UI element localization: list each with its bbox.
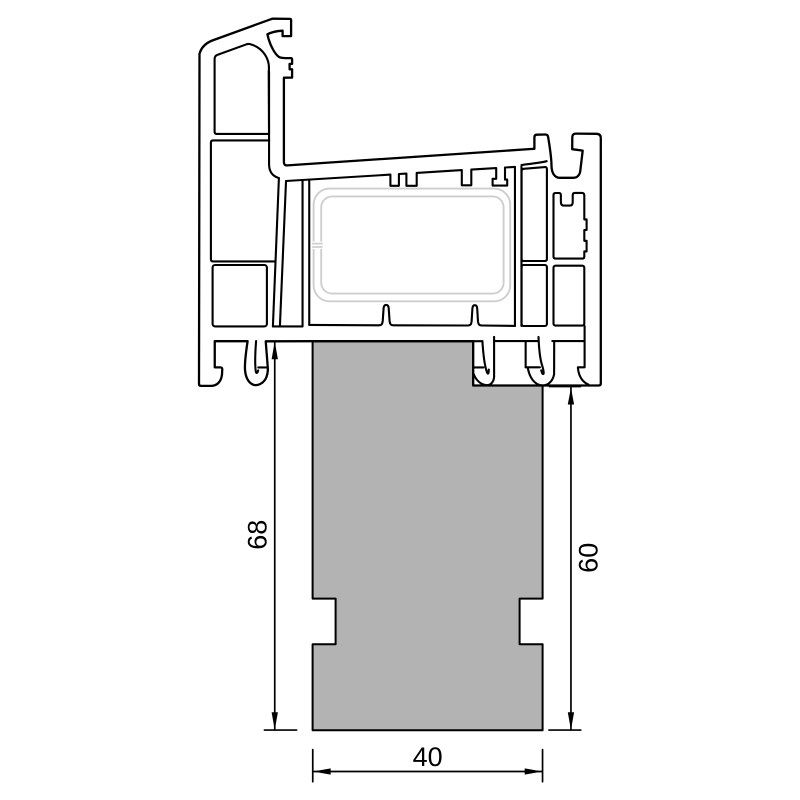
svg-text:68: 68 <box>243 520 273 550</box>
svg-text:40: 40 <box>413 742 443 772</box>
svg-text:60: 60 <box>574 543 604 573</box>
